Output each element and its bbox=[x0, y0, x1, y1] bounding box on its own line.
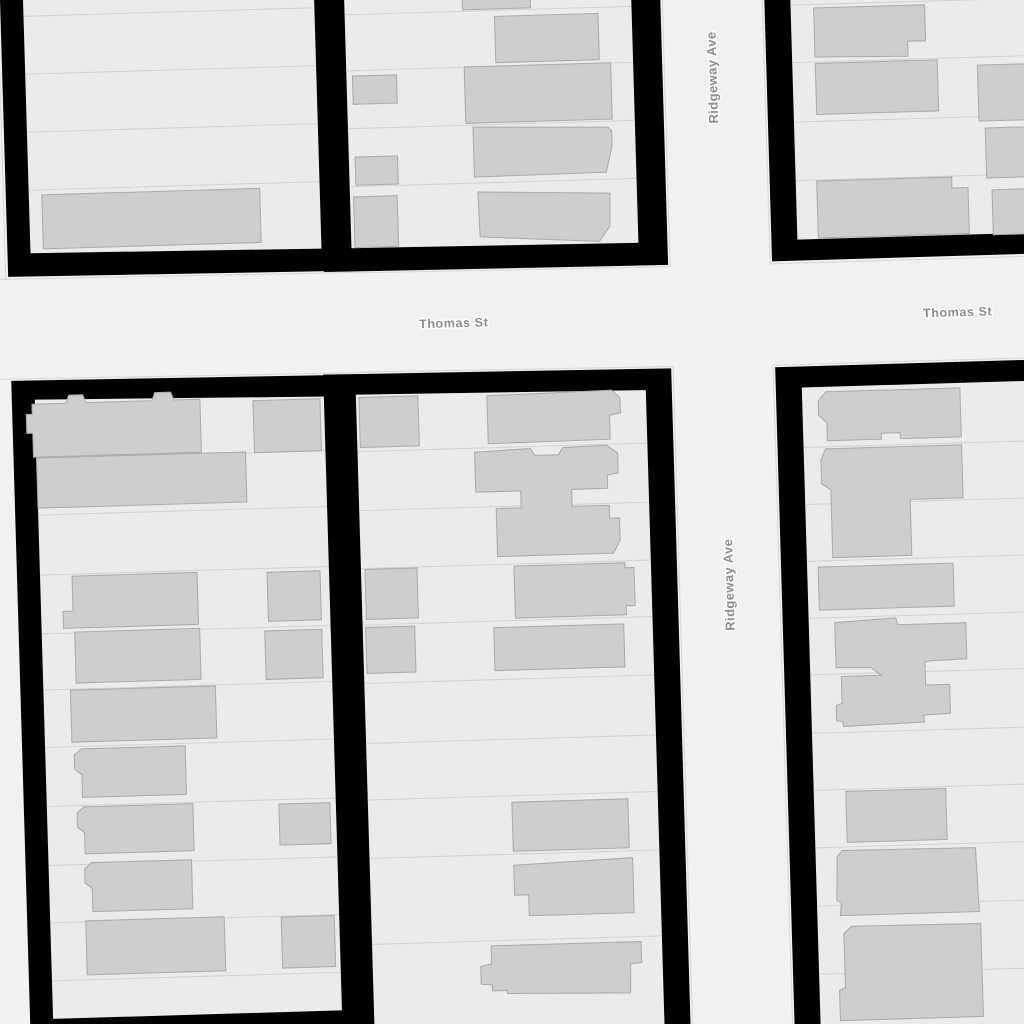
svg-text:Ridgeway Ave: Ridgeway Ave bbox=[720, 539, 738, 631]
svg-text:Ridgeway Ave: Ridgeway Ave bbox=[703, 31, 721, 123]
svg-text:Thomas St: Thomas St bbox=[419, 315, 489, 331]
svg-text:Thomas St: Thomas St bbox=[923, 304, 993, 320]
